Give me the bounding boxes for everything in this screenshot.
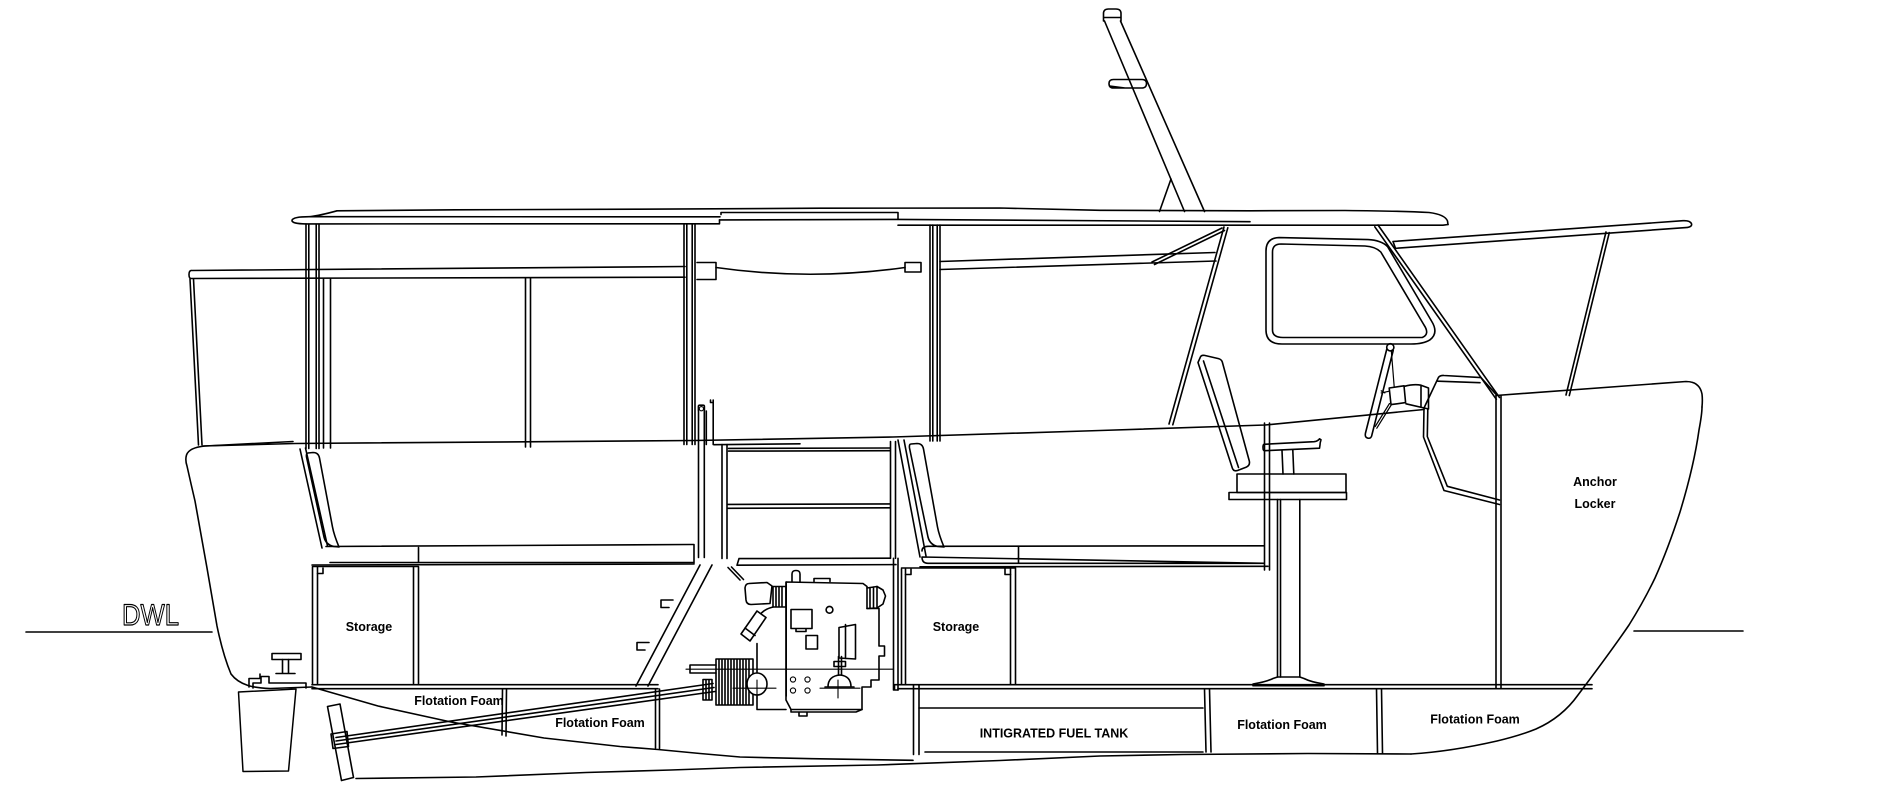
svg-text:Storage: Storage	[346, 620, 393, 634]
svg-text:DWL: DWL	[122, 599, 179, 632]
svg-text:Flotation Foam: Flotation Foam	[555, 716, 645, 730]
svg-text:Locker: Locker	[1575, 497, 1616, 511]
svg-text:Flotation Foam: Flotation Foam	[414, 694, 504, 708]
svg-text:Storage: Storage	[933, 620, 980, 634]
svg-text:Flotation Foam: Flotation Foam	[1430, 713, 1520, 727]
svg-text:Flotation Foam: Flotation Foam	[1237, 718, 1327, 732]
svg-text:Anchor: Anchor	[1573, 475, 1617, 489]
svg-text:INTIGRATED FUEL TANK: INTIGRATED FUEL TANK	[980, 727, 1129, 741]
